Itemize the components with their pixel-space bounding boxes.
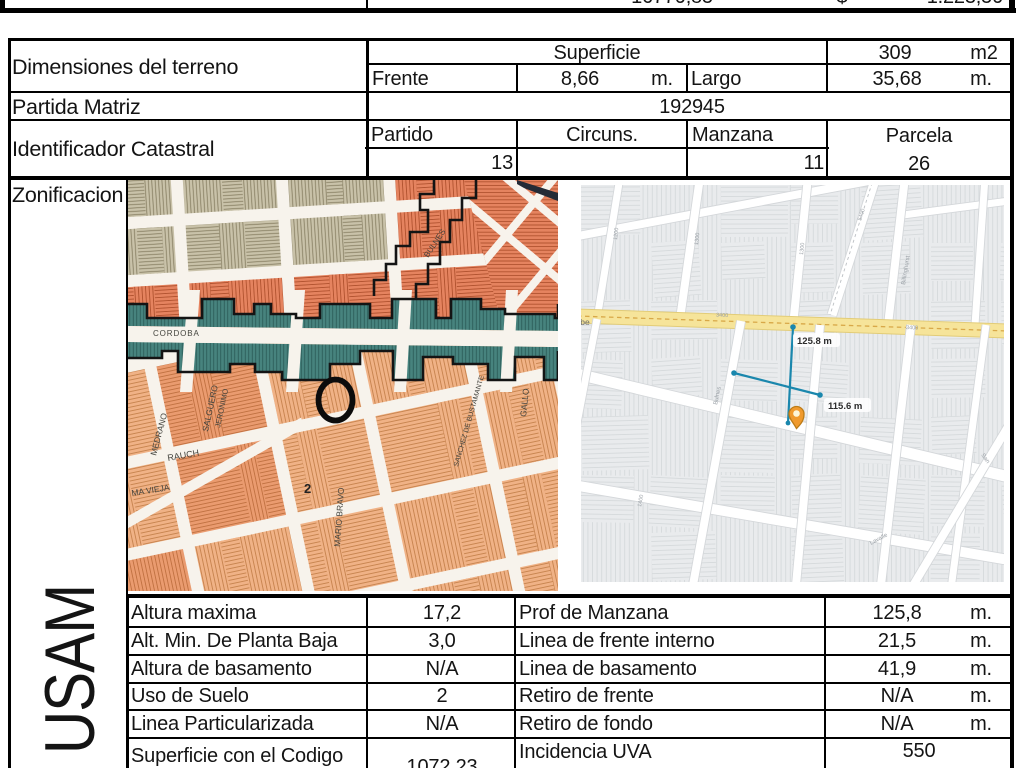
- svg-text:3400: 3400: [716, 313, 728, 319]
- svg-text:1300: 1300: [799, 242, 806, 255]
- svg-text:CORDOBA: CORDOBA: [153, 329, 200, 338]
- svg-text:3400: 3400: [906, 325, 918, 331]
- svg-text:1200: 1200: [613, 227, 620, 240]
- svg-text:2: 2: [304, 481, 311, 496]
- svg-text:125.8 m: 125.8 m: [797, 336, 832, 347]
- svg-text:1300: 1300: [694, 232, 701, 245]
- svg-text:115.6 m: 115.6 m: [828, 401, 862, 412]
- svg-text:rdobe: rdobe: [581, 317, 590, 327]
